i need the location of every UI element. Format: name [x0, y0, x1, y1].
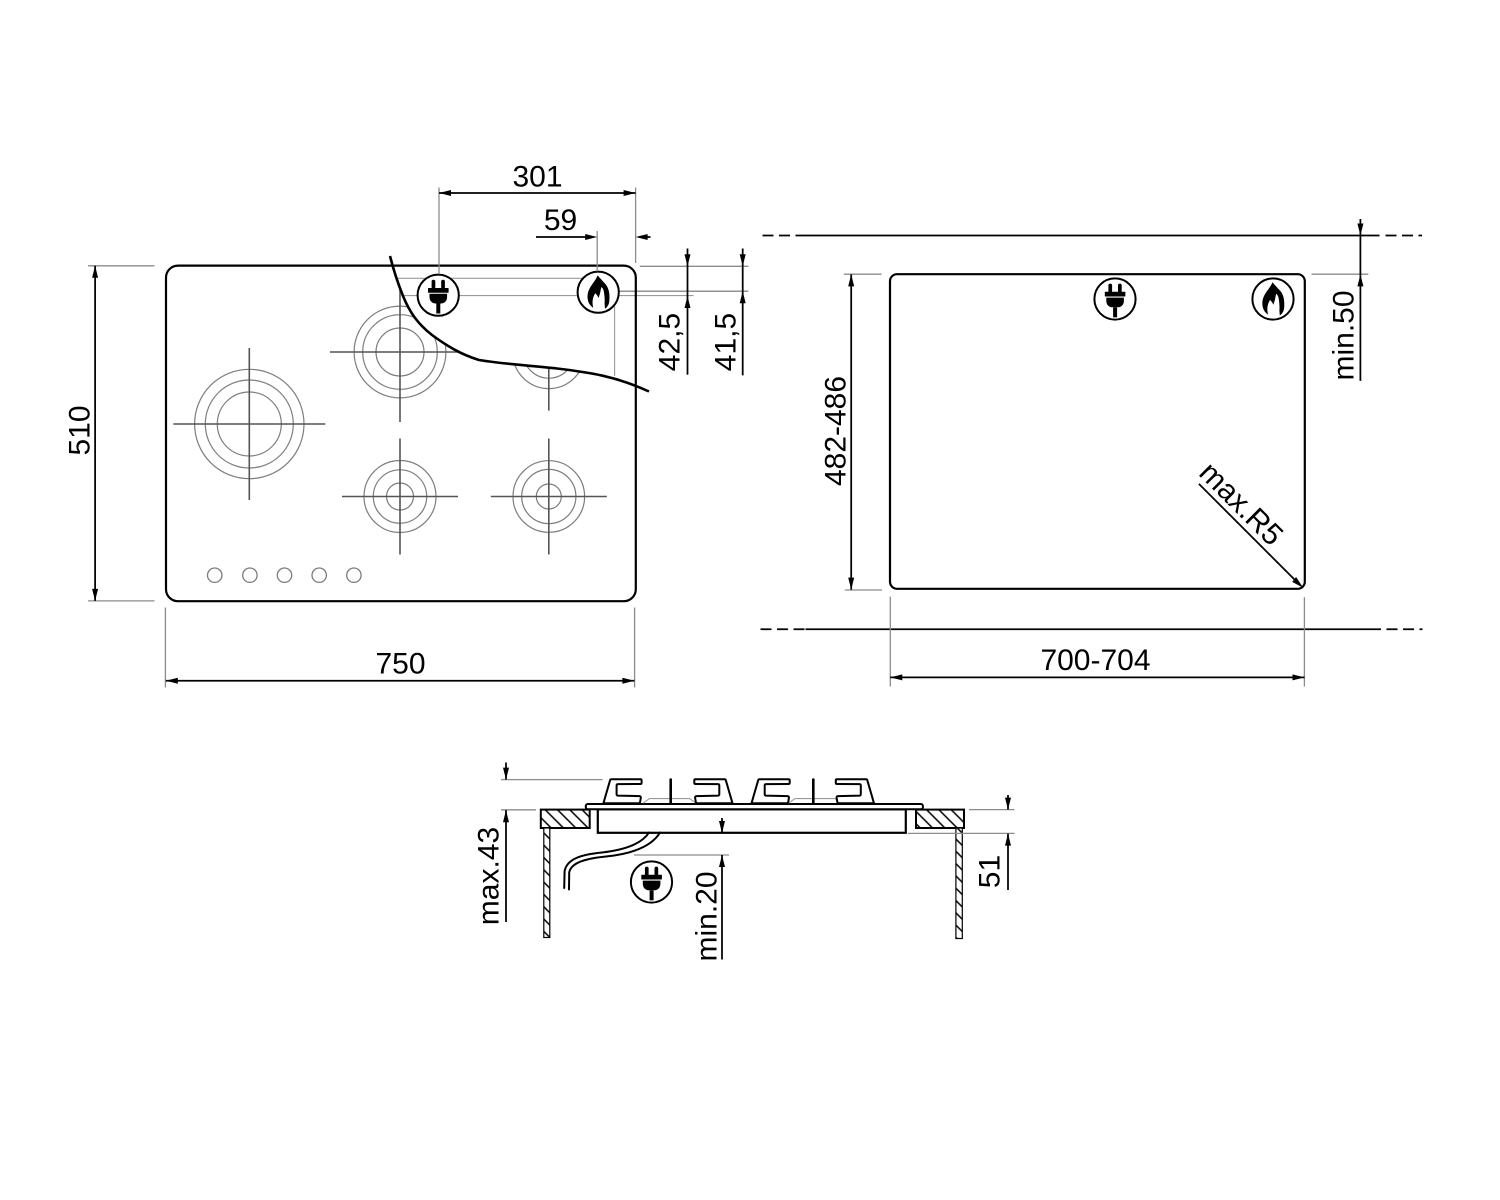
- svg-text:510: 510: [64, 405, 97, 455]
- svg-text:301: 301: [512, 161, 562, 194]
- svg-text:41,5: 41,5: [710, 313, 743, 371]
- svg-text:750: 750: [375, 648, 425, 681]
- svg-text:700-704: 700-704: [1040, 644, 1150, 677]
- svg-text:max.43: max.43: [473, 827, 506, 925]
- svg-text:min.50: min.50: [1328, 290, 1361, 380]
- svg-text:51: 51: [974, 855, 1007, 888]
- svg-text:42,5: 42,5: [654, 313, 687, 371]
- svg-text:482-486: 482-486: [820, 376, 853, 486]
- svg-text:min.20: min.20: [691, 871, 724, 961]
- svg-text:59: 59: [544, 204, 577, 237]
